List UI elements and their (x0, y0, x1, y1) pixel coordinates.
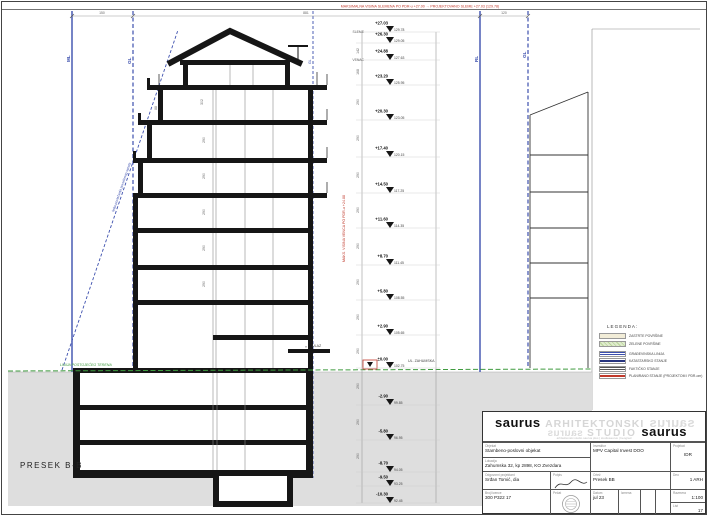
svg-text:127.63: 127.63 (394, 56, 404, 60)
svg-text:+17.40: +17.40 (375, 146, 389, 151)
field-investitor: InvestitorMPV Capital Invest DOO (590, 442, 670, 471)
top-dim: 881 (303, 11, 309, 15)
svg-text:+2.90: +2.90 (377, 324, 388, 329)
svg-text:+11.60: +11.60 (375, 217, 388, 222)
legend-label: GRAĐEVINSKA LINIJA (629, 352, 664, 356)
logo-caption: arhitektonski studio saurus plus | studi… (483, 436, 705, 440)
legend-swatch-katastarsko (599, 358, 626, 364)
field-lokacija: LokacijaZahumska 32, kp 2898, KO Zvezdar… (483, 457, 590, 471)
legend-item: FAKTIČKO STANJE (599, 366, 703, 372)
legend-item: ZASTRTE POVRŠINE (599, 333, 703, 339)
legend-label: ZELENE POVRŠINE (629, 342, 661, 346)
neighbour-building (530, 92, 588, 368)
field-potpis: Potpis (550, 471, 590, 489)
signature (553, 478, 589, 489)
legend-label: ZASTRTE POVRŠINE (629, 334, 663, 338)
section-title: PRESEK B-B (20, 461, 83, 470)
elevation-marker: +5.80108.55 (377, 289, 404, 301)
svg-text:+5.80: +5.80 (377, 289, 388, 294)
legend-item: PLANIRANO STANJE (PROJEKTOM I PDR-om) (599, 373, 703, 379)
svg-text:+27.03: +27.03 (375, 21, 389, 26)
elevation-marker: +27.03129.78 (375, 21, 404, 33)
legend: LEGENDA: ZASTRTE POVRŠINE ZELENE POVRŠIN… (599, 324, 703, 381)
svg-text:+23.20: +23.20 (375, 74, 389, 79)
svg-text:93.25: 93.25 (394, 482, 403, 486)
entrance-label: ULAZ (312, 344, 322, 348)
left-dim: 168 (356, 69, 360, 75)
left-dim: 290 (356, 135, 360, 141)
svg-text:120.15: 120.15 (394, 153, 404, 157)
setback-note: linija povlačenja povučenog sprata (111, 162, 132, 212)
elevation-marker: +20.30123.05 (375, 109, 404, 121)
svg-text:-10.30: -10.30 (376, 492, 389, 497)
field-izmena-empty (655, 489, 670, 514)
legend-label: FAKTIČKO STANJE (629, 367, 659, 371)
elevation-marker: ±0.00102.75 (378, 357, 405, 369)
legend-item: GRAĐEVINSKA LINIJA (599, 351, 703, 357)
field-datum: Datumjul 23 (590, 489, 618, 514)
interior-dim: 290 (202, 209, 206, 215)
basement-interior (80, 373, 306, 470)
top-dimension-chain: 150 881 120 (70, 11, 530, 18)
interior-dim: 290 (202, 281, 206, 287)
terrain-note: LINIJA POSTOJEĆEG TERENA (60, 362, 112, 367)
datum-marker (363, 360, 377, 369)
svg-text:+24.88: +24.88 (375, 49, 389, 54)
legend-item: KATASTARSKO STANJE (599, 358, 703, 364)
elevation-marker: +23.20125.95 (375, 74, 404, 86)
title-block: saurus ARHITEKTONSKI saurus saurus STUDI… (482, 411, 706, 514)
svg-text:-8.70: -8.70 (378, 461, 388, 466)
interior-dim: 290 (202, 245, 206, 251)
street-label: UL. ZAHUMSKA (408, 359, 435, 363)
label-ml: ML (66, 55, 71, 62)
elevation-marker: +8.70111.45 (377, 254, 404, 266)
svg-text:+26.30: +26.30 (375, 32, 389, 37)
left-dim: 290 (356, 207, 360, 213)
svg-text:125.95: 125.95 (394, 81, 404, 85)
elevation-marker: +26.30129.05 (375, 32, 404, 44)
field-deo: Deo 1 ARH (670, 471, 705, 489)
interior-dim: 290 (202, 173, 206, 179)
svg-text:-2.90: -2.90 (378, 394, 388, 399)
elevation-marker: +2.90105.65 (377, 324, 404, 336)
svg-text:111.45: 111.45 (394, 261, 404, 265)
svg-text:108.55: 108.55 (394, 296, 404, 300)
left-dim: 290 (356, 383, 360, 389)
elevation-marker: +14.50117.25 (375, 182, 404, 194)
left-dim: 290 (356, 348, 360, 354)
field-pecat: Pečat (550, 489, 590, 514)
svg-text:117.25: 117.25 (394, 189, 404, 193)
field-objekat: ObjekatStambeno-poslovni objekat (483, 442, 590, 457)
field-list: List 17 (670, 502, 705, 514)
svg-text:102.75: 102.75 (394, 364, 404, 368)
legend-item: ZELENE POVRŠINE (599, 341, 703, 347)
legend-title: LEGENDA: (607, 324, 703, 329)
svg-text:92.45: 92.45 (394, 499, 403, 503)
studio-logo: saurus ARHITEKTONSKI saurus saurus STUDI… (483, 412, 705, 442)
legend-swatch-fakticko (599, 366, 626, 372)
svg-text:-5.80: -5.80 (378, 429, 388, 434)
svg-text:+20.30: +20.30 (375, 109, 389, 114)
svg-text:123.05: 123.05 (394, 116, 404, 120)
interior-dim: 88 (154, 106, 158, 110)
legend-label: PLANIRANO STANJE (PROJEKTOM I PDR-om) (629, 374, 702, 378)
building-section: ULAZ « 302 88 290 290 290 290 290 (73, 31, 330, 507)
field-izmena: Izmena (618, 489, 640, 514)
left-dim: 290 (356, 314, 360, 320)
drawing-sheet: ML GL GL RL GL linija povlačenja povučen… (0, 0, 708, 516)
field-broj-licence: Broj licence300 P322 17 (483, 489, 550, 514)
legend-swatch-gradjevinska (599, 351, 626, 357)
legend-swatch-zastrte (599, 333, 626, 339)
svg-text:+14.50: +14.50 (375, 182, 389, 187)
left-dim: 142 (356, 48, 360, 54)
top-dim: 150 (99, 11, 105, 15)
svg-text:129.05: 129.05 (394, 39, 404, 43)
brand-wordmark: saurus (495, 415, 541, 430)
entrance-chevron-icon: « (305, 345, 307, 349)
field-projekat: Projekat IDR (670, 442, 705, 471)
interior-dim: 290 (202, 137, 206, 143)
top-dim: 120 (501, 11, 507, 15)
svg-text:114.35: 114.35 (394, 224, 404, 228)
sleme-label: SLEME (353, 30, 365, 34)
elevation-marker: +17.40120.15 (375, 146, 404, 158)
svg-text:96.95: 96.95 (394, 436, 403, 440)
elevation-marker: +11.60114.35 (375, 217, 404, 229)
setback-line (62, 30, 178, 370)
elevation-marker: +24.88127.63 (375, 49, 404, 61)
left-dim: 290 (356, 419, 360, 425)
max-cornice-note: MAKS. VISINA VENCA PO PDR-u +24.88 (342, 195, 346, 262)
legend-label: KATASTARSKO STANJE (629, 359, 667, 363)
roof (168, 31, 302, 64)
left-dim: 290 (356, 99, 360, 105)
left-dim: 290 (356, 453, 360, 459)
svg-text:+8.70: +8.70 (377, 254, 388, 259)
svg-text:129.78: 129.78 (394, 28, 404, 32)
svg-text:±0.00: ±0.00 (378, 357, 389, 362)
svg-text:-9.50: -9.50 (378, 475, 388, 480)
field-razmera: Razmera 1:100 (670, 489, 705, 502)
field-crtez: CrtežPresek BB (590, 471, 670, 489)
venac-label: VENAC (352, 58, 364, 62)
legend-swatch-zelene (599, 341, 626, 347)
label-gl: GL (127, 57, 132, 64)
label-rl: RL (474, 56, 479, 62)
field-odgovorni-projektant: Odgovorni projektantSrđan Tomić, dia (483, 471, 550, 489)
field-izmena-empty (640, 489, 655, 514)
svg-text:105.65: 105.65 (394, 331, 404, 335)
label-gl2: GL (522, 51, 527, 58)
left-dim: 290 (356, 172, 360, 178)
svg-text:99.85: 99.85 (394, 401, 403, 405)
left-dim: 290 (356, 243, 360, 249)
left-dim: 290 (356, 279, 360, 285)
stamp-seal-icon (553, 495, 589, 514)
max-height-note: MAKSIMALNA VISINA SLEMENA PO PDR-u +27.0… (341, 5, 499, 9)
legend-swatch-planirano (599, 373, 626, 379)
svg-text:94.05: 94.05 (394, 468, 403, 472)
interior-dim: 302 (200, 99, 204, 105)
label-gl-back: GL (308, 59, 312, 64)
